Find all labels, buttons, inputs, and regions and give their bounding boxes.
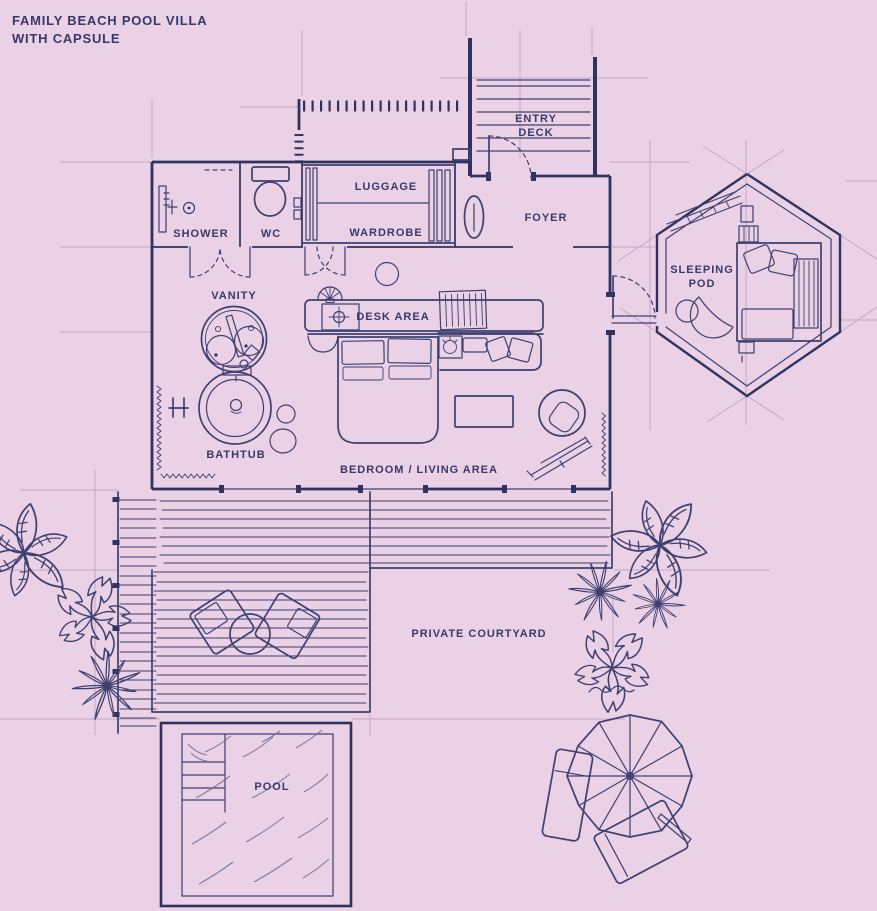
pillow — [388, 339, 431, 364]
label-private-courtyard: PRIVATE COURTYARD — [411, 628, 546, 640]
label-shower: SHOWER — [173, 228, 228, 240]
grass-scribble — [589, 686, 634, 692]
pod-bench — [667, 192, 742, 231]
privacy-screen — [299, 99, 464, 162]
sink-left — [207, 336, 236, 365]
pod-striped-box — [739, 226, 758, 242]
foyer-board — [465, 196, 484, 238]
plant-leafy-top-left — [0, 494, 85, 608]
deck-step — [453, 149, 470, 160]
nightstand — [439, 336, 462, 358]
towel-rail — [169, 398, 188, 417]
pod-chair — [676, 297, 733, 338]
pendant-light-icon — [376, 263, 399, 286]
bench — [527, 437, 592, 480]
outdoor-chair-right — [254, 592, 321, 660]
pool-steps — [182, 734, 225, 812]
egg-chair — [539, 390, 585, 436]
label-sleeping-pod-1: SLEEPING — [670, 264, 734, 276]
pool — [161, 723, 351, 906]
label-sleeping-pod-2: POD — [689, 278, 716, 290]
label-vanity: VANITY — [211, 290, 256, 302]
plant-monstera-right — [553, 608, 670, 725]
stool — [277, 405, 295, 423]
label-entry-deck-1: ENTRY — [515, 113, 557, 125]
outdoor-chair-left — [189, 589, 255, 655]
tub-drain-icon — [231, 400, 242, 411]
sleeping-pod — [657, 174, 840, 396]
label-foyer: FOYER — [525, 212, 568, 224]
sofa — [438, 333, 541, 370]
curtain-zigzag-right — [602, 413, 606, 476]
label-pool: POOL — [254, 781, 289, 793]
cushion — [463, 338, 487, 352]
pod-bed — [737, 243, 821, 341]
plant-pot — [270, 429, 296, 453]
floor-plan-page: FAMILY BEACH POOL VILLA WITH CAPSULE — [0, 0, 877, 911]
lounger-left — [542, 749, 594, 842]
label-bathtub: BATHTUB — [206, 449, 265, 461]
toilet — [252, 167, 301, 219]
bathtub — [199, 372, 296, 453]
plant-star-1 — [564, 556, 635, 628]
deck-sitting-area — [152, 492, 370, 712]
vanity — [202, 307, 267, 382]
entry-door — [489, 136, 531, 178]
curtain-zigzag-left — [157, 386, 215, 478]
throw-pillow — [485, 336, 511, 362]
shower-fixtures — [159, 186, 195, 232]
plant-leafy-right — [594, 476, 732, 614]
blanket — [742, 309, 793, 339]
pod-ac-unit — [741, 206, 753, 222]
side-table — [308, 336, 338, 352]
label-bedroom-living: BEDROOM / LIVING AREA — [340, 464, 498, 476]
rug — [439, 290, 486, 330]
plant-monstera-left — [38, 562, 144, 668]
floor-plan-drawing: ENTRY DECK FOYER LUGGAGE WARDROBE SHOWER… — [0, 0, 877, 911]
bathroom-doors — [190, 170, 345, 277]
ottoman — [455, 396, 513, 427]
label-wc: WC — [261, 228, 281, 240]
pod-bridge — [612, 276, 656, 323]
pool-water-ripples — [192, 730, 329, 884]
deck-walkway — [116, 492, 612, 733]
throw-pillow — [507, 337, 533, 362]
label-desk-area: DESK AREA — [356, 311, 429, 323]
plant-palm-left — [72, 651, 140, 720]
label-entry-deck-2: DECK — [518, 127, 553, 139]
pillow — [342, 341, 384, 365]
label-wardrobe: WARDROBE — [349, 227, 422, 239]
label-luggage: LUGGAGE — [355, 181, 418, 193]
